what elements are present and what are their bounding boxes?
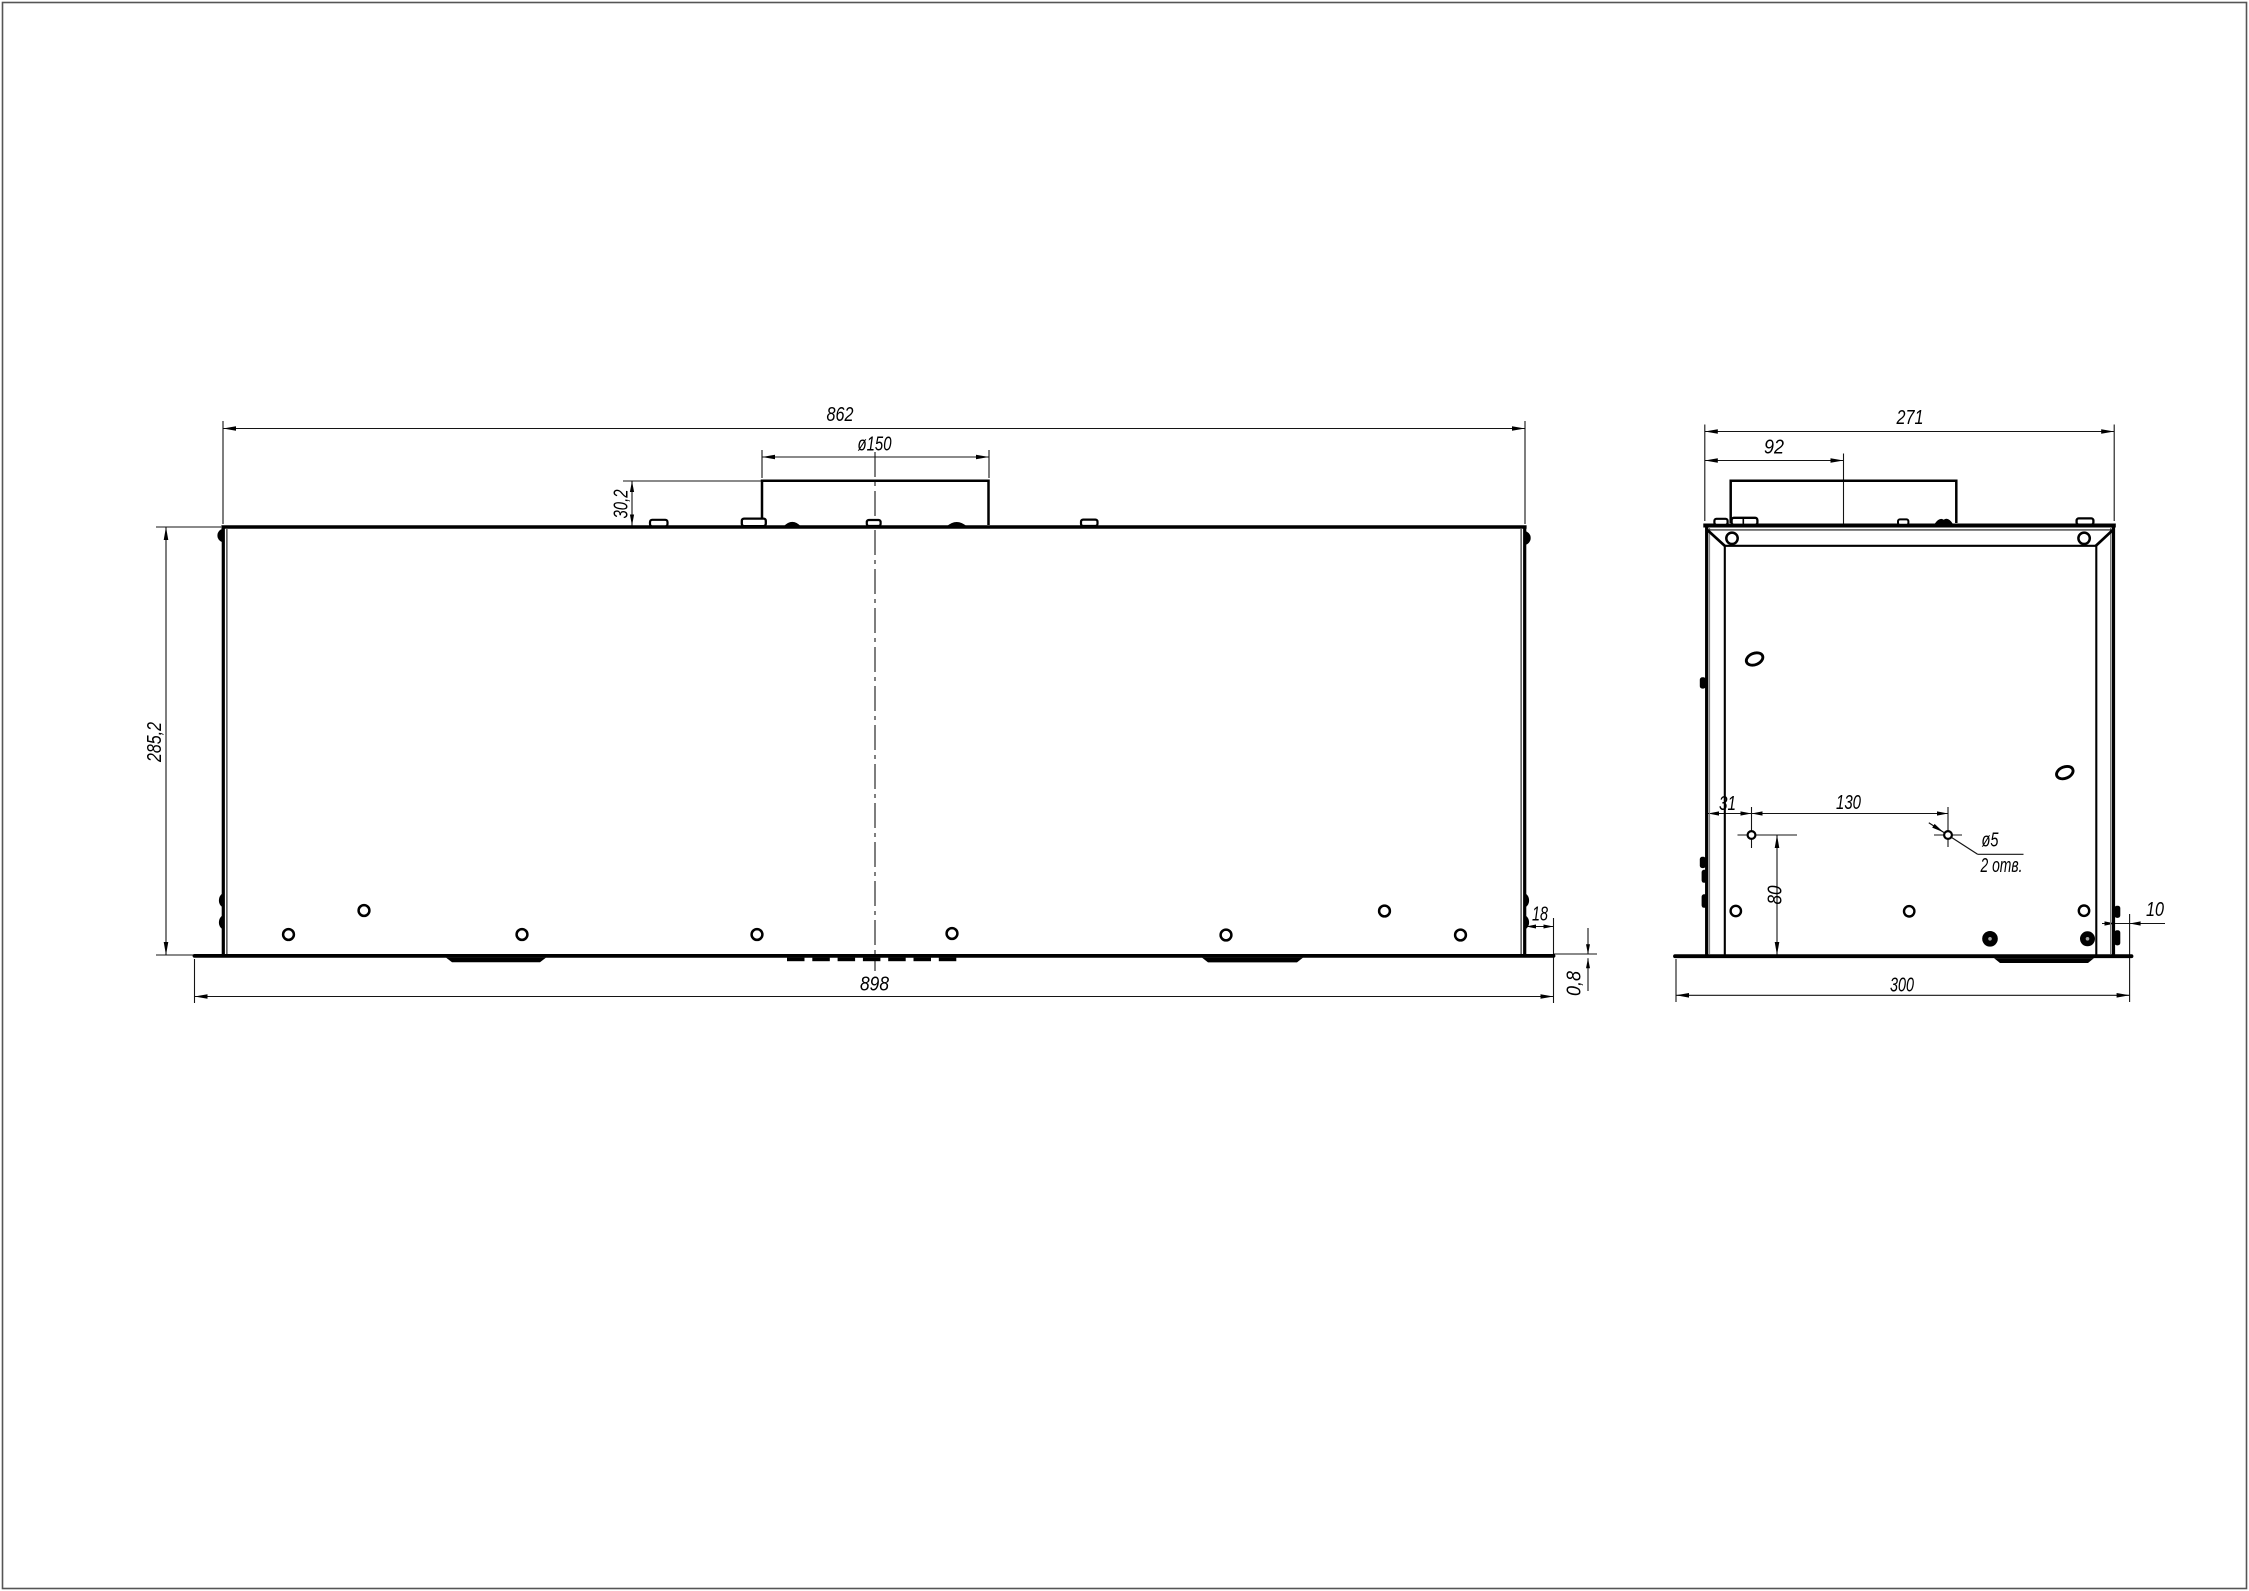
svg-text:300: 300 xyxy=(1890,974,1914,997)
svg-text:898: 898 xyxy=(860,973,889,996)
svg-text:31: 31 xyxy=(1719,792,1736,815)
svg-text:92: 92 xyxy=(1764,436,1785,459)
svg-text:80: 80 xyxy=(1764,885,1787,904)
svg-text:0,8: 0,8 xyxy=(1563,970,1586,996)
svg-text:862: 862 xyxy=(827,403,854,426)
svg-text:130: 130 xyxy=(1836,791,1861,814)
svg-text:ø5: ø5 xyxy=(1982,829,1999,852)
svg-text:10: 10 xyxy=(2146,898,2164,921)
svg-text:2 отв.: 2 отв. xyxy=(1980,854,2023,877)
svg-text:18: 18 xyxy=(1532,903,1548,926)
svg-text:271: 271 xyxy=(1896,406,1924,429)
svg-text:ø150: ø150 xyxy=(858,433,892,456)
svg-text:285,2: 285,2 xyxy=(143,722,166,763)
svg-text:30,2: 30,2 xyxy=(610,489,633,518)
